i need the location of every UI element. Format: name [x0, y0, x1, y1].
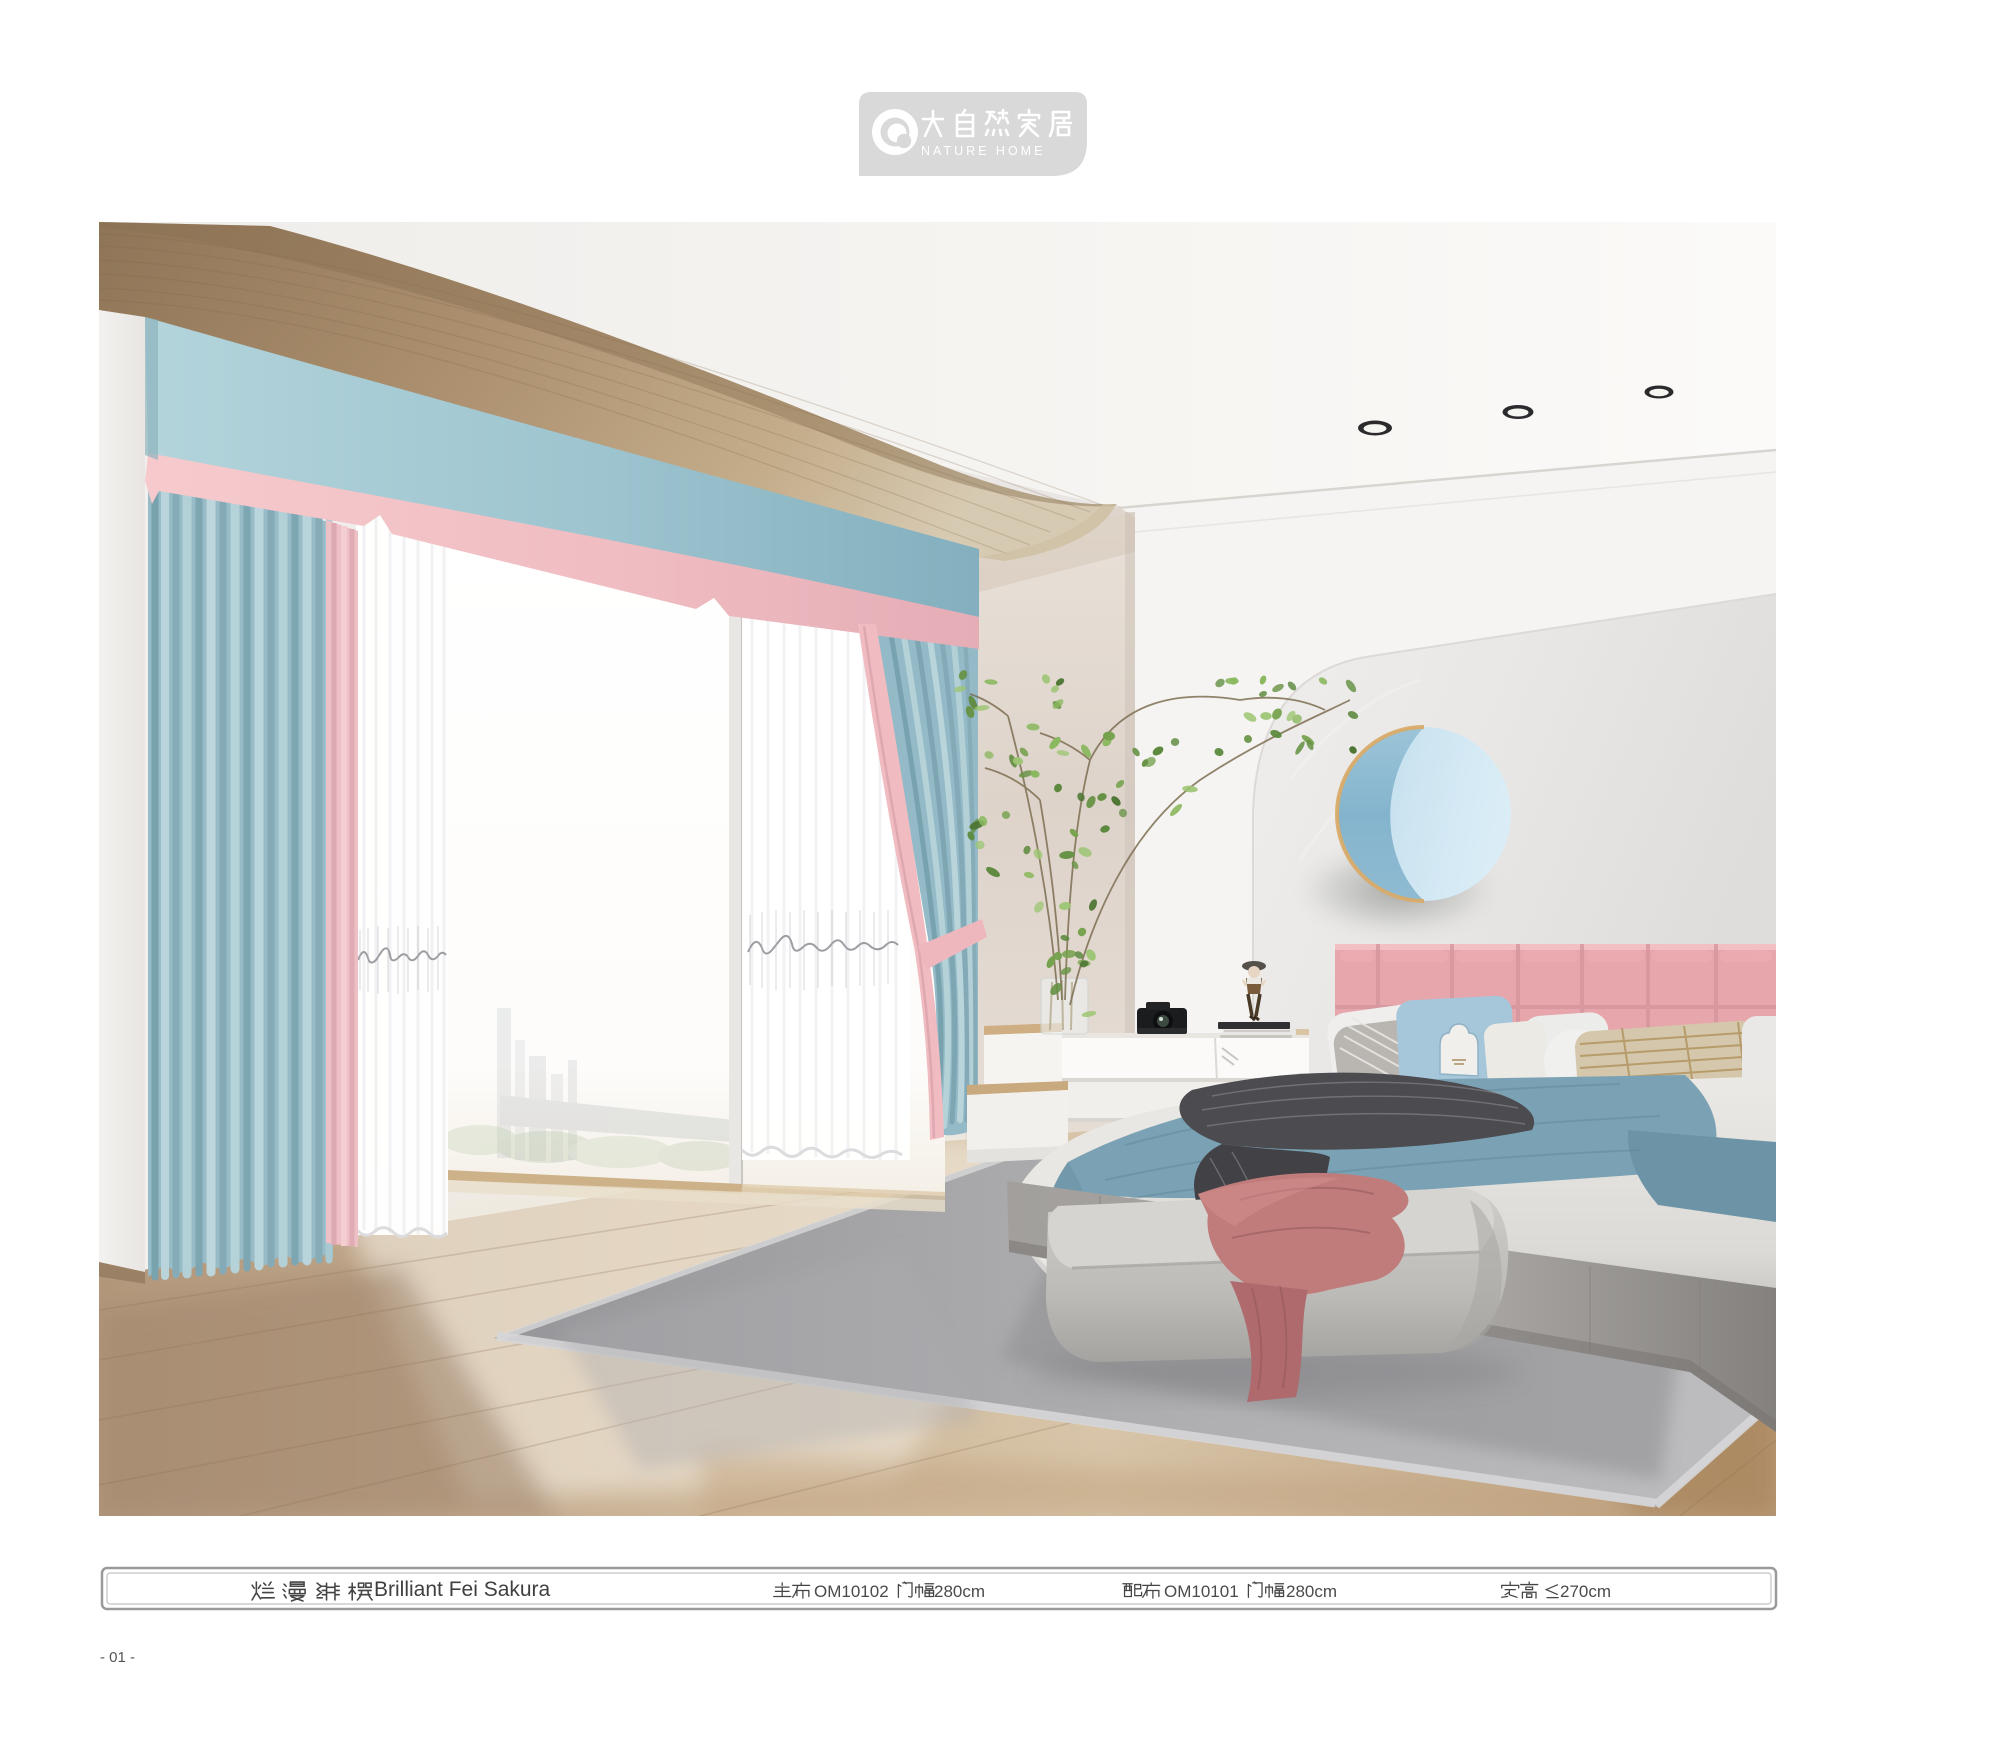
- svg-text:270cm: 270cm: [1560, 1582, 1611, 1601]
- svg-text:Brilliant Fei Sakura: Brilliant Fei Sakura: [374, 1578, 551, 1601]
- svg-text:OM10101: OM10101: [1164, 1582, 1239, 1601]
- svg-text:280cm: 280cm: [934, 1582, 985, 1601]
- svg-text:280cm: 280cm: [1286, 1582, 1337, 1601]
- svg-text:NATURE HOME: NATURE HOME: [921, 144, 1045, 158]
- svg-text:- 01 -: - 01 -: [100, 1649, 135, 1666]
- svg-text:OM10102: OM10102: [814, 1582, 889, 1601]
